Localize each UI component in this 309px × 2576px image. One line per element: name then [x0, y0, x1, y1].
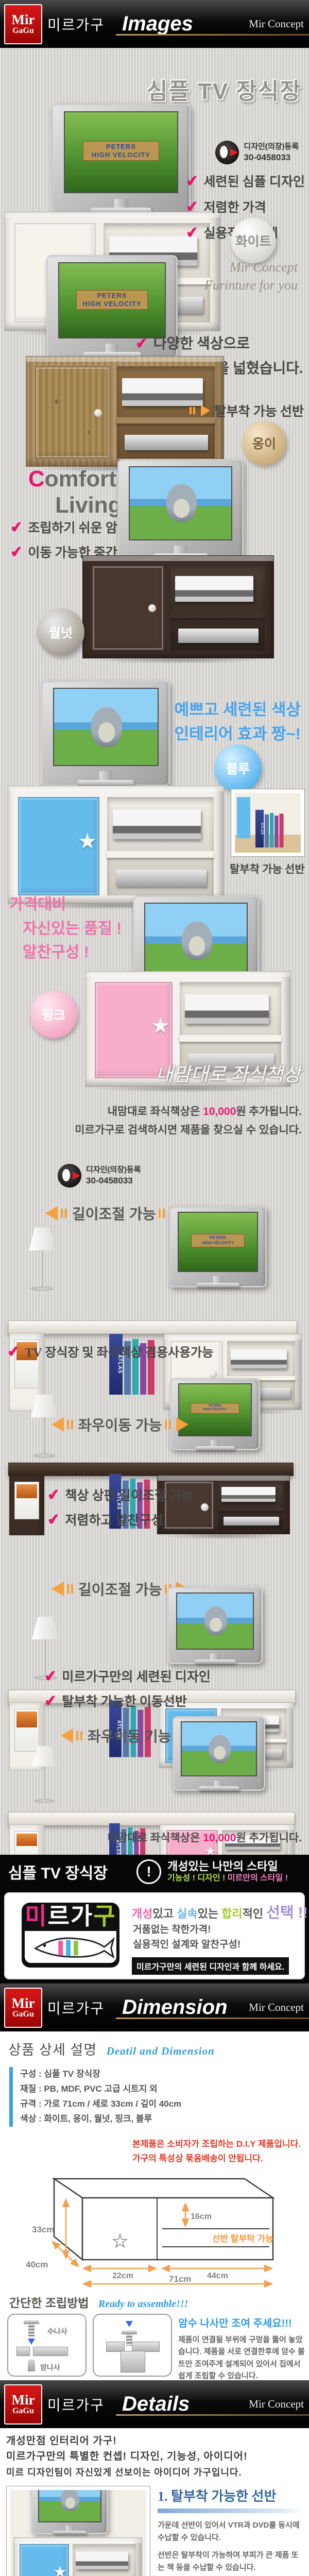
screen-text: HIGH VELOCITY — [83, 151, 159, 159]
lamp-pole — [42, 1250, 43, 1286]
tv-illustration-walnut — [117, 459, 244, 560]
book-spine-atlas: ATLAS — [255, 810, 264, 848]
variety-line: 다양한 색상으로 — [153, 332, 250, 353]
details-body: 개성만점 인터리어 가구! 미르가구만의 특별한 컨셉! 디자인, 기능성, 아… — [0, 2428, 309, 2576]
tv-screen-totoro — [181, 1721, 257, 1776]
male-screw-label: 수나사 — [47, 2326, 67, 2336]
price-note-2: 내맘대로 좌식책상은 10,000원 추가됩니다. — [108, 1829, 302, 1845]
details-intro: 개성만점 인터리어 가구! — [6, 2433, 303, 2449]
cabinet-walnut — [82, 555, 274, 658]
header-underline — [116, 2018, 309, 2019]
cabinet-body: ★ — [13, 2537, 142, 2576]
book-spine — [265, 815, 269, 848]
design-reg-number: 30-0458033 — [244, 152, 290, 162]
cabinet-door — [92, 565, 164, 651]
books-illustration: ATLAS — [255, 810, 284, 848]
design-registration: 디자인(의장)등록 30-0458033 — [215, 141, 299, 164]
panel-block — [121, 2351, 145, 2372]
feature-underline — [158, 2509, 303, 2513]
price-note: 내맘대로 좌식책상은 10,000원 추가됩니다. — [108, 1103, 302, 1118]
cabinet-door-blue: ★ — [18, 797, 100, 896]
lamp-shade — [32, 1617, 59, 1639]
tv-base — [53, 2531, 87, 2534]
logo-char: 르가 — [48, 1903, 94, 1929]
check-icon: ✔ — [135, 334, 149, 353]
cabinet-bay — [170, 565, 265, 651]
dimension-title: 상품 상세 설명 Deatil and Dimension — [8, 2039, 309, 2059]
section-title-dimension: Dimension — [122, 1996, 227, 2019]
feature-paragraph: 선반은 탈부착이 가능하여 부피가 큰 제품 또는 책 등을 수납할 수 있습니… — [158, 2549, 303, 2574]
fish-icon — [25, 1931, 116, 1963]
vcr-device — [76, 2552, 128, 2569]
brand-name: 미르가구 — [47, 14, 105, 35]
dim-44cm: 44cm — [207, 2272, 228, 2280]
headline-word: 합리 — [221, 1907, 242, 1920]
check-icon: ✔ — [185, 197, 199, 216]
tv-screen-puppies: PETERSHIGH VELOCITY — [64, 111, 178, 193]
feature-title: 1. 탈부착 가능한 선반 — [158, 2486, 303, 2505]
headline-word: 개성 — [132, 1907, 152, 1920]
panel-block — [106, 2342, 125, 2352]
lamp-base — [31, 1286, 54, 1291]
banner-sub-green: 기능성 ! 디자인 ! — [167, 1874, 225, 1883]
cabinet-blue-photo: ★ — [13, 2537, 142, 2576]
brand-name: 미르가구 — [47, 1997, 105, 2018]
concept-label: Mir Concept — [249, 2001, 304, 2014]
lamp-base — [33, 1453, 56, 1458]
inset-photo-books: ATLAS — [231, 789, 305, 857]
inset-photo: ATLAS — [235, 793, 301, 853]
door-knob — [94, 409, 102, 417]
tv-screen-totoro — [129, 466, 232, 540]
mir-concept-script: Mir Concept Furinture for you — [184, 258, 298, 294]
tv-illustration-desk: PETERSHIGH VELOCITY — [169, 1206, 267, 1287]
mir-gagu-logo: Mir GaGu — [4, 2384, 42, 2425]
book-spine — [270, 813, 273, 848]
brand-box: 미르가구 개성있고 실속있는 합리적인 선택 !! 거품없는 착한가격! 실용적… — [4, 1892, 305, 1979]
tv-base — [194, 1659, 236, 1664]
check-icon: ✔ — [185, 223, 199, 242]
tv-base — [198, 1786, 239, 1791]
panel-block — [132, 2342, 160, 2352]
desk-checks-1: ✔책상 상판 길이조절 가능 ✔저렴하고 알찬구성 — [47, 1485, 193, 1529]
product-title: 심플 TV 장식장 — [147, 73, 302, 106]
spec-label: 구성 — [20, 2069, 44, 2079]
arrow-hatch — [190, 407, 197, 414]
search-note: 미르가구로 검색하시면 제품을 찾으실 수 있습니다. — [75, 1122, 302, 1137]
inset-blue-door — [237, 797, 250, 838]
check-icon: ✔ — [46, 1485, 61, 1504]
vcr-device — [113, 809, 201, 839]
dimension-title-en: Deatil and Dimension — [107, 2045, 215, 2057]
tv-illustration-blue — [41, 681, 170, 786]
vcr-device — [175, 576, 253, 602]
desk-top — [8, 1463, 294, 1476]
logo-text-mir: Mir — [5, 2393, 41, 2407]
tv-illustration-hero: PETERSHIGH VELOCITY — [51, 104, 191, 214]
screen-text: HIGH VELOCITY — [192, 1241, 244, 1246]
shelf — [170, 612, 265, 618]
header-underline — [116, 34, 309, 36]
images-section-header: Mir GaGu 미르가구 Images Mir Concept — [0, 0, 309, 48]
photo: ★ — [10, 2490, 146, 2576]
price-value: 10,000 — [203, 1832, 236, 1844]
lamp-illustration — [30, 1746, 58, 1803]
check-icon: ✔ — [185, 172, 199, 191]
shelf-arrow-label: 탈부착 가능 선반 — [214, 401, 304, 420]
tv-screen-totoro — [176, 1592, 254, 1650]
assemble-row: 수나사 암나사 암수 나사만 조여 주세요!!! 제품이 연결될 부위에 구멍을… — [7, 2314, 305, 2382]
shelf — [107, 851, 214, 858]
spec-row: 규격가로 71cm / 세로 33cm / 깊이 40cm — [20, 2097, 309, 2112]
style-banner: 심플 TV 장식장 ! 개성있는 나만의 스타일 기능성 ! 디자인 ! 미르만… — [0, 1855, 309, 1888]
logo-text-gagu: GaGu — [5, 2407, 41, 2416]
desk-leg-panel — [9, 1475, 44, 1535]
headline-word: 적인 — [243, 1907, 267, 1920]
tighten-note: 암수 나사만 조여 주세요!!! — [178, 2315, 305, 2330]
price-text: 내맘대로 좌식책상은 — [108, 1106, 203, 1117]
panel-block — [33, 2347, 68, 2356]
door-knob — [201, 1503, 209, 1511]
inset-caption-row: 탈부착 가능 선반 — [230, 861, 305, 876]
assemble-kr: 간단한 조립방법 — [9, 2296, 89, 2310]
feature-paragraph: 가운데 선반이 있어서 VTR과 DVD를 동시에 수납할 수 있습니다. — [158, 2519, 303, 2544]
lamp-pole — [44, 1417, 45, 1453]
header-underline — [116, 2414, 309, 2416]
script-line: Furinture for you — [204, 278, 298, 293]
arrow-label: 좌우이동 기능 — [88, 1725, 171, 1746]
details-section-header: Mir GaGu 미르가구 Details Mir Concept — [0, 2380, 309, 2428]
cabinet-bay — [218, 1481, 284, 1530]
dimension-title-kr: 상품 상세 설명 — [8, 2042, 97, 2058]
arrow-right-icon — [176, 1417, 188, 1432]
tv-screen-totoro — [38, 2490, 101, 2522]
spec-label: 재질 — [20, 2084, 44, 2094]
brand-points: 거품없는 착한가격! 실용적인 설계와 알찬구성! — [133, 1922, 241, 1953]
logo-text-mir: Mir — [5, 1996, 41, 2010]
color-badge-walnut: 월넛 — [37, 608, 84, 656]
check-icon: ✔ — [6, 1342, 21, 1361]
lamp-illustration — [27, 1228, 58, 1291]
dimension-drawing: ☆ 33cm 16cm 선반 탈부탁 가능 22cm 44cm 71cm 40c… — [3, 2170, 306, 2293]
cabinet-body — [82, 555, 274, 658]
shelf-arrow-note: 탈부착 가능 선반 — [190, 401, 304, 420]
star-knob: ★ — [204, 1845, 216, 1855]
assembly-diagram-1: 수나사 암나사 — [7, 2314, 87, 2377]
tv-base — [196, 1283, 239, 1287]
book-spine — [274, 816, 278, 848]
screen-text: HIGH VELOCITY — [191, 1408, 239, 1412]
dvd-player — [116, 870, 207, 887]
price-value: 10,000 — [203, 1106, 236, 1117]
arrow-label: 좌우이동 가능 — [78, 1414, 162, 1435]
magazine — [14, 1831, 39, 1855]
logo-char: 구 — [93, 1903, 116, 1929]
panel-block — [16, 2347, 30, 2356]
price-text: 원 추가됩니다. — [236, 1106, 302, 1117]
banner-title: 심플 TV 장식장 — [8, 1860, 108, 1883]
promo-line: 가격대비 — [9, 896, 66, 913]
star-icon: ★ — [151, 1013, 170, 1038]
book-spine — [280, 814, 284, 848]
banner-sub-pink: 미르만의 스타일 ! — [228, 1874, 288, 1883]
desk-top — [8, 1320, 297, 1334]
promo-line: 자신있는 품질 ! — [23, 920, 122, 937]
price-text: 원 추가됩니다. — [236, 1832, 302, 1844]
screen-text: PETERS — [77, 292, 148, 300]
script-line: Mir Concept — [230, 260, 298, 275]
logo-text-mir: Mir — [5, 12, 41, 27]
diy-note: 본제품은 소비자가 조립하는 D.I.Y 제품입니다. 가구의 특성상 묶음배송… — [132, 2137, 301, 2166]
tv-illustration — [31, 2490, 108, 2534]
price-text: 내맘대로 좌식책상은 — [108, 1832, 203, 1844]
cabinet-door — [35, 366, 110, 459]
images-body: 심플 TV 장식장 디자인(의장)등록 30-0458033 PETERSHIG… — [0, 48, 309, 1855]
screw-head — [24, 2320, 39, 2324]
dimension-section-header: Mir GaGu 미르가구 Dimension Mir Concept — [0, 1984, 309, 2031]
tv-screen-totoro — [144, 903, 248, 979]
screen-crate: PETERSHIGH VELOCITY — [191, 1234, 244, 1247]
arrow-hatch — [159, 1209, 167, 1218]
check-icon: ✔ — [9, 518, 24, 537]
promo-line: 인테리어 효과 짱~! — [175, 725, 301, 743]
tv-illustration-desk — [173, 1716, 265, 1791]
mir-gagu-logo: Mir GaGu — [4, 4, 42, 44]
headline-word: 선택 !! — [266, 1905, 308, 1921]
vcr-device — [221, 1487, 276, 1501]
arrow-label: 길이조절 가능 — [78, 1579, 162, 1599]
headline-word: 있고 — [152, 1907, 177, 1920]
feature-1: ★ 1. 탈부착 가능한 선반 가운데 선반이 있어서 VTR과 DVD를 동시… — [6, 2486, 303, 2576]
lamp-shade — [29, 1228, 56, 1250]
female-screw-label: 암나사 — [40, 2362, 60, 2372]
dvd-player — [224, 1517, 279, 1525]
pink-promo: 가격대비 자신있는 품질 ! 알찬구성 ! — [9, 893, 122, 965]
checklist-item: TV 장식장 및 좌식책상 겸용사용가능 — [25, 1342, 213, 1360]
promo-line: 알찬구성 ! — [23, 944, 89, 961]
star-icon: ★ — [78, 829, 97, 853]
star-icon: ★ — [53, 2564, 67, 2576]
screw-head — [122, 2330, 137, 2334]
section-title-images: Images — [122, 12, 193, 36]
arrow-hatch — [76, 1731, 84, 1740]
lamp-shade — [32, 1746, 57, 1767]
screen-text: PETERS — [191, 1404, 239, 1409]
length-adjust-arrows: 길이조절 가능 — [45, 1203, 182, 1224]
dim-22cm: 22cm — [112, 2272, 133, 2280]
inset-caption: 탈부착 가능 선반 — [230, 861, 305, 876]
brand-point: 거품없는 착한가격! — [133, 1922, 241, 1937]
arrow-hatch — [61, 1209, 69, 1218]
dim-71cm: 71cm — [169, 2274, 191, 2284]
screen-crate: PETERSHIGH VELOCITY — [76, 290, 148, 310]
details-intro: 미르 디자인팀이 자신있게 선보이는 아이디어 가구입니다. — [6, 2465, 303, 2479]
assemble-en: Ready to assemble!!! — [98, 2298, 188, 2310]
banner-line: 개성있는 나만의 스타일 — [167, 1860, 288, 1873]
spec-label: 규격 — [20, 2099, 44, 2109]
shelf — [218, 1507, 284, 1511]
shelf — [180, 1035, 281, 1042]
color-badge-knotty: 옹이 — [242, 421, 286, 465]
arrow-hatch — [165, 1420, 173, 1429]
brand-box-wrap: 미르가구 개성있고 실속있는 합리적인 선택 !! 거품없는 착한가격! 실용적… — [0, 1888, 309, 1984]
design-reg-label: 디자인(의장)등록 — [244, 142, 299, 151]
arrow-hatch — [67, 1584, 75, 1594]
door-knob — [148, 604, 156, 612]
assemble-title: 간단한 조립방법 Ready to assemble!!! — [9, 2293, 188, 2311]
tv-neck — [99, 771, 112, 781]
spec-block: 구성심플 TV 장식장 재질PB, MDF, PVC 고급 시트지 외 규격가로… — [9, 2067, 309, 2127]
spec-value: 심플 TV 장식장 — [44, 2069, 100, 2079]
dim-40cm: 40cm — [26, 2260, 48, 2269]
dvd-player — [178, 629, 259, 643]
cabinet-door-blue: ★ — [20, 2544, 69, 2576]
logo-char: 미 — [25, 1903, 47, 1929]
lamp-base — [34, 1799, 55, 1803]
check-icon: ✔ — [46, 1510, 61, 1529]
dvd-player — [125, 435, 208, 450]
cabinet-body: ★ — [8, 786, 224, 904]
arrow-left-icon — [51, 1582, 64, 1596]
dim-16cm: 16cm — [191, 2212, 212, 2221]
checklist-item: 세련된 심플 디자인 — [203, 172, 305, 190]
checklist-item: 책상 상판 길이조절 가능 — [65, 1485, 193, 1504]
brand-slogan: 미르가구만의 세련된 디자인과 함께 하세요. — [132, 1957, 289, 1975]
spec-row: 구성심플 TV 장식장 — [20, 2067, 309, 2082]
mir-fish-logo: 미르가구 — [22, 1903, 119, 1968]
brand-point: 실용적인 설계와 알찬구성! — [133, 1937, 241, 1952]
arrow-hatch — [67, 1420, 75, 1429]
brand-name: 미르가구 — [47, 2394, 105, 2415]
assembly-diagram-2 — [93, 2314, 172, 2377]
spec-value: 화이트, 옹이, 월넛, 핑크, 블루 — [44, 2114, 152, 2124]
floor-desk-script: 내맘대로 좌식책상 — [156, 1059, 301, 1087]
combo-check: ✔TV 장식장 및 좌식책상 겸용사용가능 — [7, 1342, 213, 1361]
cabinet-blue: ★ — [8, 786, 224, 904]
checklist-item: 저렴하고 알찬구성 — [65, 1510, 163, 1529]
exclamation-icon: ! — [136, 1859, 161, 1884]
diy-line: 가구의 특성상 묶음배송이 안됩니다. — [132, 2151, 301, 2166]
checklist-item: 미르가구만의 세련된 디자인 — [62, 1667, 211, 1685]
star-icon: ★ — [204, 1844, 216, 1855]
lamp-shade — [31, 1395, 58, 1417]
headline-word: 있는 — [198, 1907, 222, 1920]
color-badge-white: 화이트 — [231, 218, 276, 263]
desk-top — [8, 1812, 295, 1825]
assemble-text: 암수 나사만 조여 주세요!!! 제품이 연결될 부위에 구멍을 뚫어 놓았습니… — [178, 2314, 305, 2382]
check-icon: ✔ — [9, 543, 24, 562]
assemble-desc: 제품이 연결될 부위에 구멍을 뚫어 놓았습니다. 제품을 서로 연결한후에 암… — [178, 2334, 305, 2382]
door-star-outline: ☆ — [111, 2231, 129, 2252]
arrow-left-icon — [45, 1206, 58, 1221]
brand-headline: 개성있고 실속있는 합리적인 선택 !! — [132, 1901, 308, 1922]
dowel — [28, 2359, 35, 2371]
down-arrow-icon — [126, 2321, 133, 2327]
cabinet-bay — [73, 2544, 136, 2576]
vcr-device — [185, 994, 269, 1023]
tv-base — [195, 1446, 235, 1450]
screen-text: PETERS — [192, 1235, 244, 1241]
blue-promo: 예쁘고 세련된 색상 인테리어 효과 짱~! — [175, 698, 301, 746]
design-reg-icon — [215, 141, 239, 164]
star-knob: ★ — [151, 1015, 170, 1037]
lamp-illustration — [29, 1395, 60, 1458]
arrow-left-icon — [61, 1728, 73, 1743]
screen-text: PETERS — [83, 143, 159, 151]
logo-text-gagu: GaGu — [5, 2010, 41, 2019]
screen-crate: PETERSHIGH VELOCITY — [83, 141, 159, 161]
promo-line: 예쁘고 세련된 색상 — [175, 701, 301, 719]
dim-33cm: 33cm — [32, 2225, 54, 2234]
star-knob: ★ — [78, 831, 97, 852]
lr-move-arrows: 좌우이동 가능 — [51, 1414, 188, 1435]
tv-screen-puppies: PETERSHIGH VELOCITY — [178, 1383, 252, 1437]
screen-text: HIGH VELOCITY — [77, 300, 148, 308]
feature-1-text: 1. 탈부착 가능한 선반 가운데 선반이 있어서 VTR과 DVD를 동시에 … — [158, 2486, 303, 2576]
color-badge-pink: 핑크 — [30, 991, 77, 1038]
tv-screen-puppies: PETERSHIGH VELOCITY — [178, 1212, 258, 1272]
magazine — [14, 1482, 39, 1519]
feature-1-photo: ★ — [6, 2486, 150, 2576]
tv-illustration-desk — [167, 1587, 263, 1664]
star-knob: ★ — [53, 2565, 67, 2576]
cabinet-bay — [107, 797, 214, 896]
spec-value: PB, MDF, PVC 고급 시트지 외 — [44, 2084, 157, 2094]
concept-label: Mir Concept — [249, 18, 304, 30]
concept-label: Mir Concept — [249, 2398, 304, 2411]
cabinet-line-drawing: ☆ 33cm 16cm 선반 탈부탁 가능 22cm 44cm 71cm 40c… — [3, 2170, 306, 2291]
shelf-note: 선반 탈부탁 가능 — [212, 2233, 273, 2244]
screw-body — [28, 2324, 35, 2336]
spec-label: 색상 — [20, 2114, 44, 2124]
down-arrow-icon — [28, 2338, 35, 2345]
arrow-label: 길이조절 가능 — [72, 1203, 156, 1224]
tv-screen-totoro — [53, 688, 159, 766]
diy-line: 본제품은 소비자가 조립하는 D.I.Y 제품입니다. — [132, 2137, 301, 2151]
dimension-body: 상품 상세 설명 Deatil and Dimension 구성심플 TV 장식… — [0, 2031, 309, 2380]
lamp-pole — [44, 1767, 45, 1799]
mir-gagu-logo: Mir GaGu — [4, 1988, 42, 2028]
spec-row: 색상화이트, 옹이, 월넛, 핑크, 블루 — [20, 2112, 309, 2127]
screen-crate: PETERSHIGH VELOCITY — [191, 1403, 239, 1414]
logo-text-gagu: GaGu — [5, 27, 41, 36]
color-badge-bl e: 블루 — [214, 744, 262, 792]
headline-word: 실속 — [177, 1907, 197, 1920]
details-intro: 미르가구만의 특별한 컨셉! 디자인, 기능성, 아이디어! — [6, 2449, 303, 2464]
arrow-right-icon — [201, 405, 210, 416]
desk-leg-panel — [9, 1824, 44, 1855]
spec-row: 재질PB, MDF, PVC 고급 시트지 외 — [20, 2082, 309, 2097]
tv-neck — [213, 1276, 223, 1283]
tv-screen-puppies: PETERSHIGH VELOCITY — [58, 262, 166, 338]
section-title-details: Details — [122, 2393, 190, 2416]
spec-value: 가로 71cm / 세로 33cm / 깊이 40cm — [44, 2099, 181, 2109]
checklist-item: 저렴한 가격 — [203, 197, 266, 216]
check-icon: ✔ — [43, 1667, 58, 1686]
